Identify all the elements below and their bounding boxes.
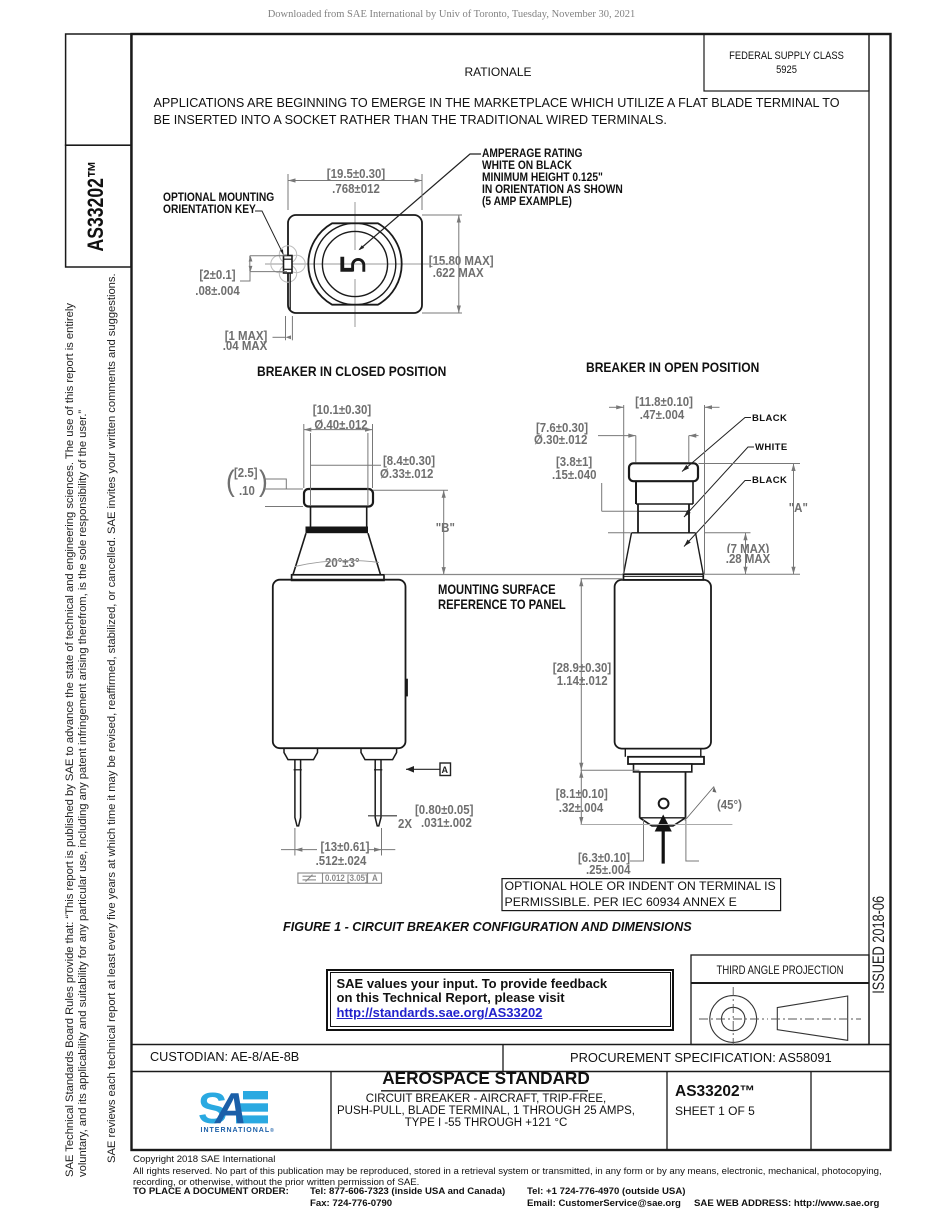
svg-text:A: A: [214, 1084, 247, 1133]
